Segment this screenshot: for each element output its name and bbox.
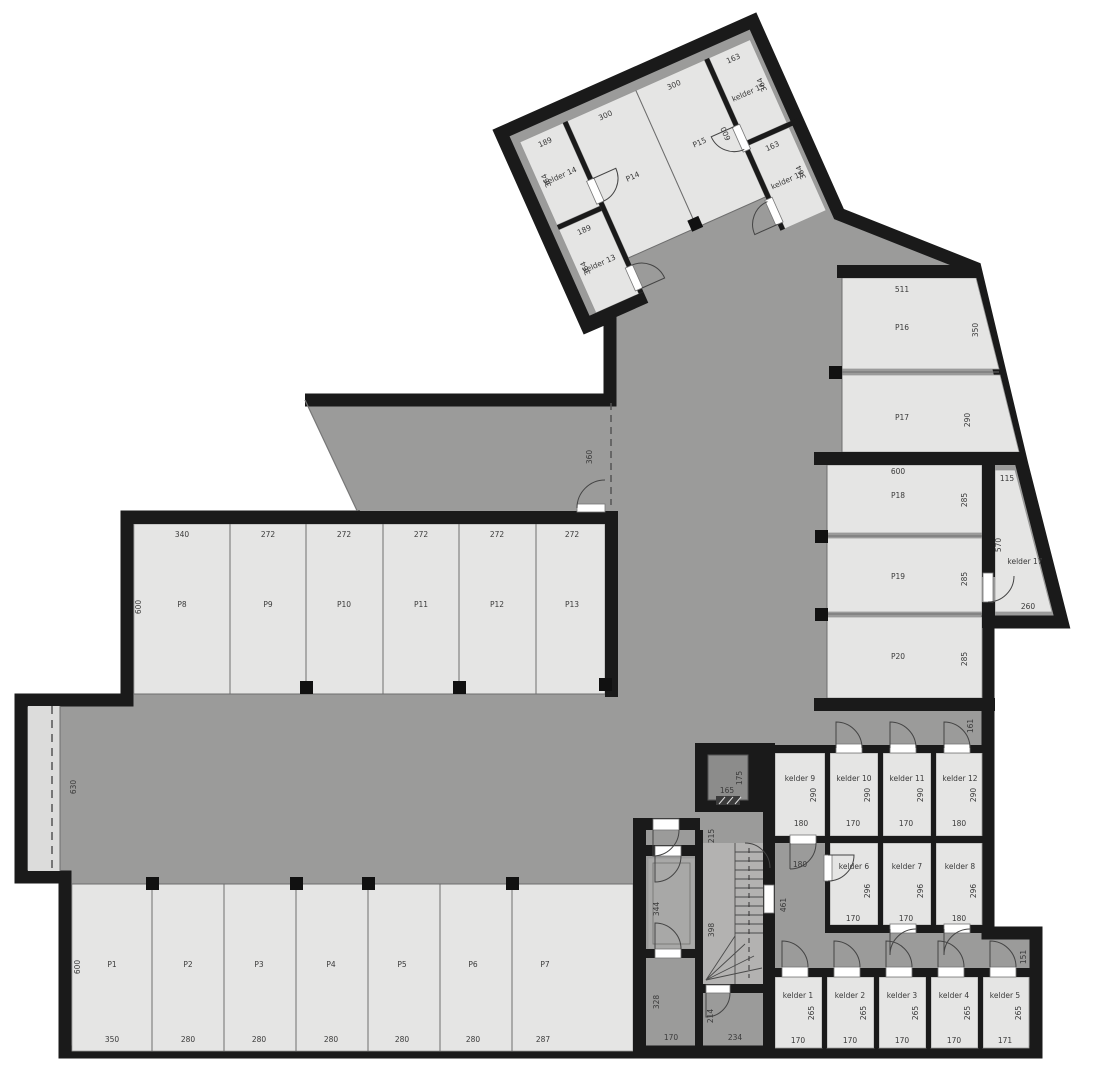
dim-label: 296 (916, 884, 925, 899)
dim-label: 180 (794, 819, 809, 828)
dim-label: 180 (952, 819, 967, 828)
room-label-kelder-6: kelder 6 (839, 862, 870, 871)
dim-label: 600 (891, 467, 906, 476)
dim-label: 280 (252, 1035, 267, 1044)
dim-label: 285 (960, 572, 969, 587)
dim-label: 280 (466, 1035, 481, 1044)
dim-label: 296 (969, 884, 978, 899)
room-label-p11: P11 (414, 600, 428, 609)
dim-label: 170 (664, 1033, 679, 1042)
dim-label: 272 (337, 530, 352, 539)
dim-label: 170 (895, 1036, 910, 1045)
dim-label: 175 (735, 771, 744, 786)
room-label-kelder-9: kelder 9 (785, 774, 816, 783)
room-label-p16: P16 (895, 323, 909, 332)
dim-label: 234 (728, 1033, 743, 1042)
ramp-surface (28, 706, 60, 871)
room-label-kelder-10: kelder 10 (836, 774, 871, 783)
dim-label: 600 (134, 600, 143, 615)
room-label-kelder-7: kelder 7 (892, 862, 923, 871)
room-label-p13: P13 (565, 600, 579, 609)
dim-label: 265 (859, 1006, 868, 1021)
dim-label: 265 (1014, 1006, 1023, 1021)
room-label-p10: P10 (337, 600, 351, 609)
entrance-ramp (28, 706, 60, 871)
dim-label: 165 (720, 786, 735, 795)
dim-label: 287 (536, 1035, 551, 1044)
dim-label: 272 (414, 530, 429, 539)
dim-label: 170 (843, 1036, 858, 1045)
room-label-p12: P12 (490, 600, 504, 609)
dim-label: 180 (793, 860, 808, 869)
room-label-p18: P18 (891, 491, 905, 500)
dim-label: 360 (585, 450, 594, 465)
dim-label: 280 (181, 1035, 196, 1044)
dim-label: 350 (105, 1035, 120, 1044)
room-label-p1: P1 (107, 960, 117, 969)
dim-label: 290 (916, 788, 925, 803)
room-label-p5: P5 (397, 960, 407, 969)
dim-label: 290 (963, 413, 972, 428)
room-p17 (842, 375, 1019, 452)
room-label-kelder-4: kelder 4 (939, 991, 970, 1000)
dim-label: 340 (175, 530, 190, 539)
dim-label: 511 (895, 285, 910, 294)
dim-label: 180 (952, 914, 967, 923)
dim-label: 290 (809, 788, 818, 803)
dim-label: 328 (652, 995, 661, 1010)
dim-label: 272 (565, 530, 580, 539)
dim-label: 398 (707, 923, 716, 938)
room-label-p20: P20 (891, 652, 905, 661)
dim-label: 285 (960, 652, 969, 667)
dim-label: 151 (1019, 950, 1028, 965)
dim-label: 461 (779, 898, 788, 913)
dim-label: 161 (966, 719, 975, 734)
room-label-kelder-11: kelder 11 (889, 774, 924, 783)
room-label-p17: P17 (895, 413, 909, 422)
dim-label: 290 (969, 788, 978, 803)
dim-label: 170 (846, 914, 861, 923)
dim-label: 260 (1021, 602, 1036, 611)
room-label-p4: P4 (326, 960, 336, 969)
dim-label: 570 (994, 538, 1003, 553)
dim-label: 630 (69, 780, 78, 795)
room-label-kelder-1: kelder 1 (783, 991, 814, 1000)
dim-label: 170 (899, 819, 914, 828)
dim-label: 265 (911, 1006, 920, 1021)
room-label-p2: P2 (183, 960, 193, 969)
dim-label: 265 (963, 1006, 972, 1021)
dim-label: 170 (947, 1036, 962, 1045)
dim-label: 265 (807, 1006, 816, 1021)
dim-label: 272 (261, 530, 276, 539)
dim-label: 600 (73, 960, 82, 975)
room-label-kelder-12: kelder 12 (942, 774, 977, 783)
room-label-kelder-17: kelder 17 (1007, 557, 1042, 566)
dim-label: 280 (395, 1035, 410, 1044)
dim-label: 170 (846, 819, 861, 828)
room-label-kelder-3: kelder 3 (887, 991, 918, 1000)
room-label-p6: P6 (468, 960, 478, 969)
room-label-p9: P9 (263, 600, 273, 609)
room-label-p3: P3 (254, 960, 264, 969)
room-label-p19: P19 (891, 572, 905, 581)
room-label-kelder-5: kelder 5 (990, 991, 1021, 1000)
dim-label: 272 (490, 530, 505, 539)
room-label-kelder-8: kelder 8 (945, 862, 976, 871)
floor-plan: 189kelder 14364189kelder 13364300P14300P… (0, 0, 1098, 1080)
stairwell (703, 843, 763, 984)
dim-label: 170 (899, 914, 914, 923)
dim-label: 350 (971, 323, 980, 338)
room-label-p8: P8 (177, 600, 187, 609)
room-label-kelder-2: kelder 2 (835, 991, 866, 1000)
dim-label: 296 (863, 884, 872, 899)
room-label-p7: P7 (540, 960, 550, 969)
dim-label: 115 (1000, 474, 1015, 483)
dim-label: 215 (707, 829, 716, 844)
dim-label: 290 (863, 788, 872, 803)
room-row-p8-p13 (134, 524, 605, 694)
dim-label: 171 (998, 1036, 1013, 1045)
dim-label: 214 (706, 1009, 715, 1024)
dim-label: 280 (324, 1035, 339, 1044)
dim-label: 170 (791, 1036, 806, 1045)
dim-label: 344 (652, 902, 661, 917)
dim-label: 285 (960, 493, 969, 508)
